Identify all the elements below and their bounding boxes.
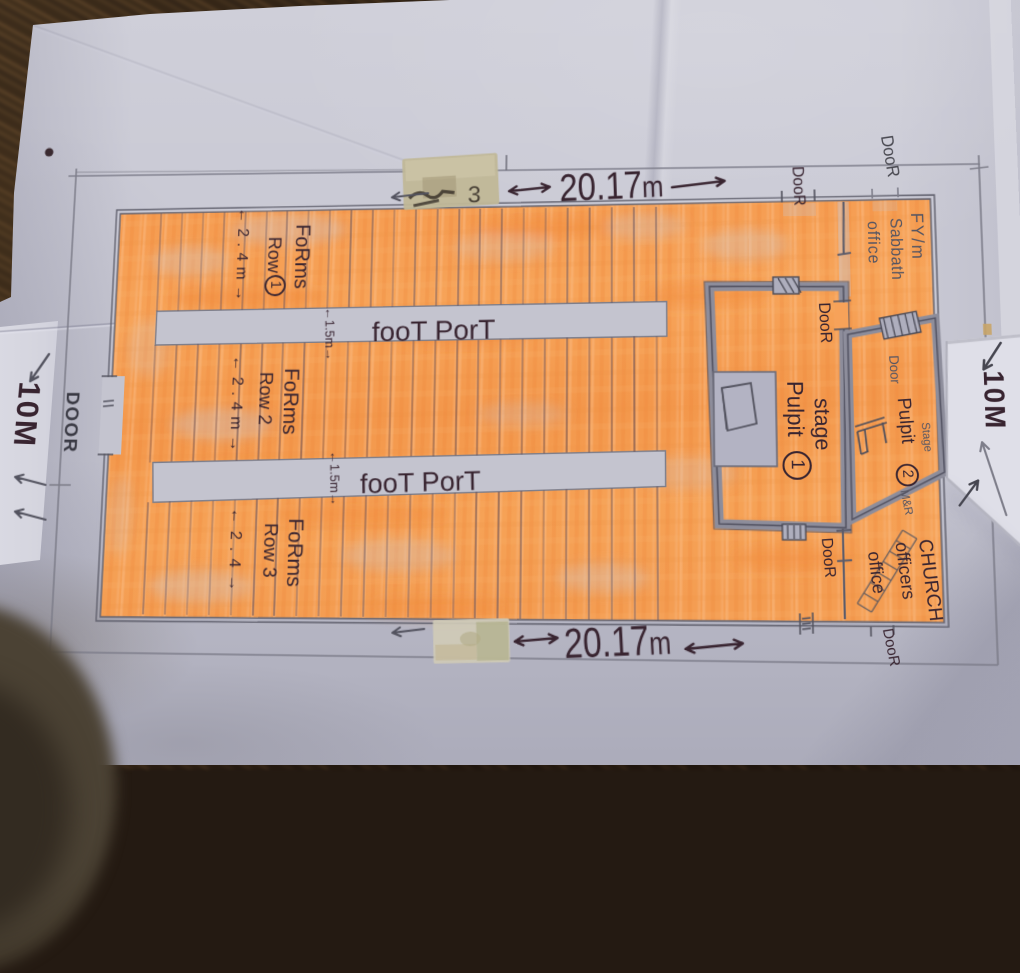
- svg-text:DooR: DooR: [879, 627, 904, 668]
- svg-text:Row: Row: [263, 237, 286, 274]
- svg-text:3: 3: [468, 181, 482, 207]
- svg-text:Row 3: Row 3: [259, 523, 283, 578]
- svg-text:FoRms: FoRms: [282, 518, 307, 587]
- svg-text:←1.5m→: ←1.5m→: [322, 307, 338, 361]
- svg-text:Row 2: Row 2: [254, 372, 278, 425]
- svg-text:←1.5m→: ←1.5m→: [327, 451, 343, 507]
- svg-text:stage: stage: [809, 398, 834, 450]
- svg-text:FoRms: FoRms: [289, 224, 314, 289]
- svg-text:FoRms: FoRms: [278, 368, 303, 435]
- svg-text:fooT PorT: fooT PorT: [360, 466, 481, 500]
- svg-text:←2.4→: ←2.4→: [224, 508, 245, 599]
- svg-text:Sabbath: Sabbath: [886, 218, 906, 281]
- svg-text:fooT PorT: fooT PorT: [372, 315, 496, 348]
- svg-text:DooR: DooR: [788, 166, 808, 206]
- svg-text:1: 1: [268, 281, 284, 289]
- svg-text:DooR: DooR: [814, 302, 835, 344]
- svg-text:Pulpit: Pulpit: [781, 381, 807, 437]
- svg-text:office: office: [863, 221, 882, 264]
- svg-text:DOOR: DOOR: [59, 392, 84, 454]
- svg-text:10M: 10M: [6, 381, 46, 449]
- svg-text:DooR: DooR: [876, 134, 902, 178]
- svg-text:FY/m: FY/m: [906, 213, 927, 261]
- svg-text:Door: Door: [886, 355, 904, 384]
- svg-text:2: 2: [899, 469, 917, 478]
- svg-text:1: 1: [787, 459, 808, 469]
- svg-text:10M: 10M: [977, 370, 1011, 430]
- svg-text:20.17m: 20.17m: [563, 616, 672, 668]
- svg-text:DooR: DooR: [818, 537, 839, 578]
